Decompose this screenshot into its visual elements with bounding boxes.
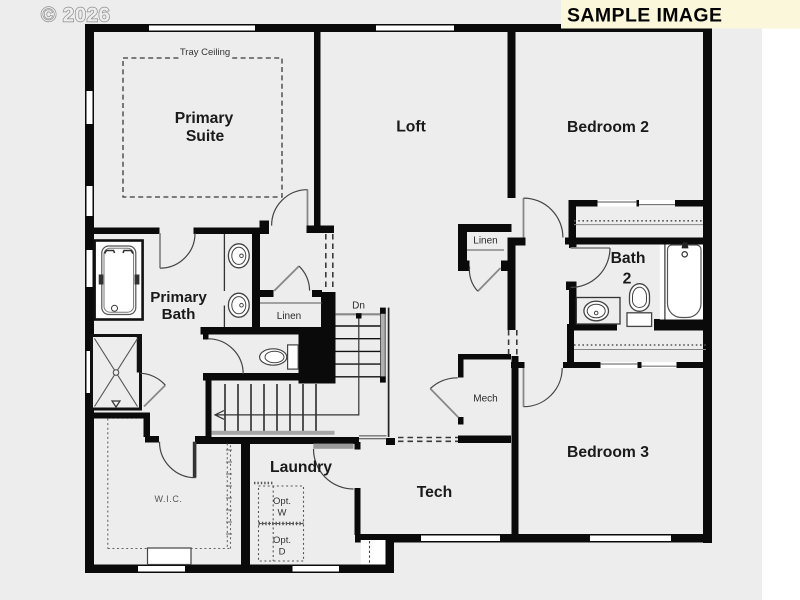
svg-text:© 2026: © 2026 xyxy=(41,4,110,27)
svg-text:Suite: Suite xyxy=(186,128,225,145)
svg-text:Bedroom 2: Bedroom 2 xyxy=(567,119,649,136)
svg-text:W: W xyxy=(278,508,287,519)
svg-text:Loft: Loft xyxy=(396,119,426,136)
svg-text:Primary: Primary xyxy=(150,289,207,306)
svg-text:Linen: Linen xyxy=(473,236,497,247)
svg-text:SAMPLE IMAGE: SAMPLE IMAGE xyxy=(567,5,722,27)
svg-text:Tech: Tech xyxy=(417,484,452,501)
svg-text:Dn: Dn xyxy=(352,301,365,312)
svg-text:Bath: Bath xyxy=(611,250,646,267)
svg-text:D: D xyxy=(279,547,286,558)
svg-text:Laundry: Laundry xyxy=(270,459,332,476)
svg-text:Tray Ceiling: Tray Ceiling xyxy=(180,47,230,58)
svg-text:Opt.: Opt. xyxy=(273,535,291,546)
svg-text:Linen: Linen xyxy=(277,311,301,322)
svg-text:Bedroom 3: Bedroom 3 xyxy=(567,444,649,461)
svg-text:Mech: Mech xyxy=(473,394,497,405)
svg-text:Bath: Bath xyxy=(162,306,196,323)
svg-text:Opt.: Opt. xyxy=(273,496,291,507)
svg-text:Primary: Primary xyxy=(175,110,234,127)
svg-text:2: 2 xyxy=(623,271,632,288)
svg-text:W.I.C.: W.I.C. xyxy=(154,494,182,504)
